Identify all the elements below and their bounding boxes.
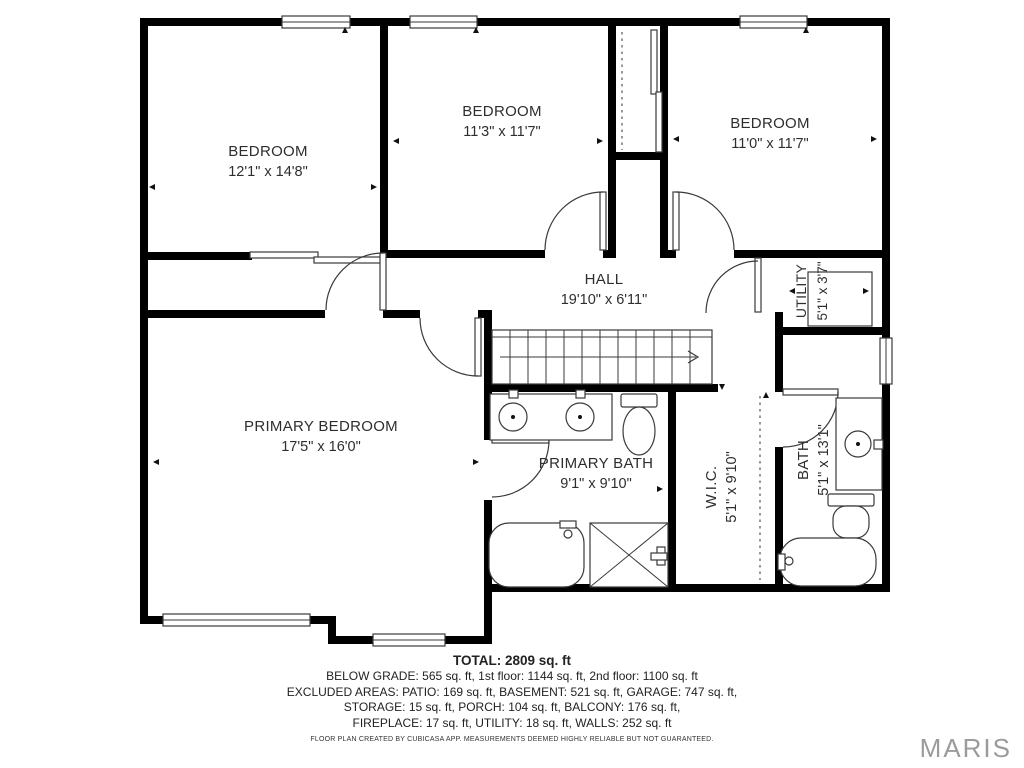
room-name: BEDROOM (228, 141, 308, 162)
floor-plan-page: BEDROOM 12'1" x 14'8" BEDROOM 11'3" x 11… (0, 0, 1024, 768)
room-label-bath: BATH 5'1" x 13'1" (793, 424, 835, 495)
room-label-bedroom3: BEDROOM 11'0" x 11'7" (730, 113, 810, 155)
room-dimensions: 19'10" x 6'11" (561, 290, 648, 311)
disclaimer-text: FLOOR PLAN CREATED BY CUBICASA APP. MEAS… (0, 736, 1024, 743)
room-name: BATH (793, 424, 814, 495)
door-leaf (380, 253, 386, 310)
window (410, 16, 477, 28)
area-summary: TOTAL: 2809 sq. ft BELOW GRADE: 565 sq. … (0, 652, 1024, 743)
door-leaf (600, 192, 606, 250)
room-dimensions: 12'1" x 14'8" (228, 162, 308, 183)
double-vanity-sink-icon (490, 390, 612, 440)
room-name: BEDROOM (462, 101, 542, 122)
window (880, 338, 892, 384)
room-label-primary-bedroom: PRIMARY BEDROOM 17'5" x 16'0" (244, 416, 398, 458)
summary-line: BELOW GRADE: 565 sq. ft, 1st floor: 1144… (0, 669, 1024, 685)
room-label-bedroom1: BEDROOM 12'1" x 14'8" (228, 141, 308, 183)
room-name: BEDROOM (730, 113, 810, 134)
summary-line: FIREPLACE: 17 sq. ft, UTILITY: 18 sq. ft… (0, 716, 1024, 732)
room-dimensions: 17'5" x 16'0" (244, 437, 398, 458)
sliding-door (250, 252, 318, 258)
room-label-bedroom2: BEDROOM 11'3" x 11'7" (462, 101, 542, 143)
sliding-door (656, 92, 662, 152)
window (282, 16, 350, 28)
room-name: PRIMARY BATH (539, 453, 653, 474)
room-name: PRIMARY BEDROOM (244, 416, 398, 437)
summary-line: EXCLUDED AREAS: PATIO: 169 sq. ft, BASEM… (0, 685, 1024, 701)
room-dimensions: 5'1" x 13'1" (814, 424, 835, 495)
room-label-wic: W.I.C. 5'1" x 9'10" (701, 451, 743, 522)
window (163, 614, 310, 626)
total-area: TOTAL: 2809 sq. ft (0, 652, 1024, 669)
bathtub-icon (489, 521, 584, 587)
stairs-icon (492, 330, 712, 384)
room-label-utility: UTILITY 5'1" x 3'7" (791, 261, 833, 320)
door-arc (420, 318, 478, 376)
room-label-hall: HALL 19'10" x 6'11" (561, 269, 648, 311)
sliding-door (314, 257, 382, 263)
shower-icon (590, 523, 668, 587)
door-arc (706, 261, 758, 313)
window (740, 16, 807, 28)
door-leaf (673, 192, 679, 250)
room-dimensions: 9'1" x 9'10" (539, 474, 653, 495)
summary-line: STORAGE: 15 sq. ft, PORCH: 104 sq. ft, B… (0, 700, 1024, 716)
door-leaf (783, 389, 838, 395)
vanity-sink-icon (836, 398, 883, 490)
room-dimensions: 11'3" x 11'7" (462, 122, 542, 143)
room-name: W.I.C. (701, 451, 722, 522)
room-dimensions: 11'0" x 11'7" (730, 134, 810, 155)
room-dimensions: 5'1" x 9'10" (722, 451, 743, 522)
door-leaf (475, 318, 481, 376)
sliding-door (651, 30, 657, 94)
room-name: UTILITY (791, 261, 812, 320)
toilet-icon (828, 494, 874, 538)
door-leaf (755, 258, 761, 312)
door-arc (545, 192, 603, 250)
bathtub-icon (778, 538, 876, 586)
room-label-primary-bath: PRIMARY BATH 9'1" x 9'10" (539, 453, 653, 495)
room-name: HALL (561, 269, 648, 290)
window (373, 634, 445, 646)
room-dimensions: 5'1" x 3'7" (812, 261, 833, 320)
maris-watermark: MARIS (920, 733, 1012, 764)
toilet-icon (621, 394, 657, 455)
door-arc (676, 192, 734, 250)
